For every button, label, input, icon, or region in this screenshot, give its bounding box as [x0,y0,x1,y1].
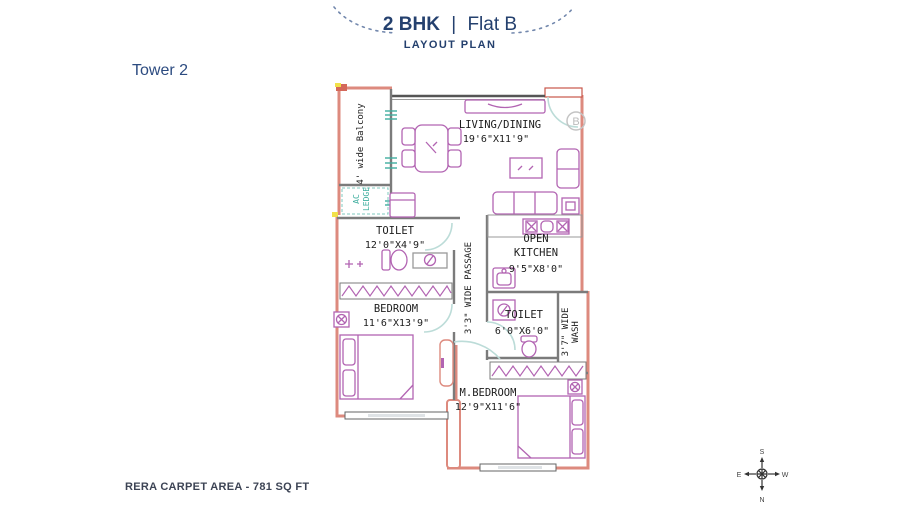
decorative-dash-left-icon [330,4,400,36]
passage-label: 3'3" WIDE PASSAGE [464,242,474,334]
title-divider: | [451,14,456,35]
page-subtitle: LAYOUT PLAN [0,39,900,51]
master-bedroom-label: M.BEDROOM [460,387,517,399]
common-toilet-dims: 12'0"X4'9" [365,240,425,251]
entry-flat-marker-label: B [572,116,579,128]
carpet-area-label: RERA CARPET AREA - 781 SQ FT [125,481,309,493]
compass-right-label: W [782,472,789,479]
bedroom-dims: 11'6"X13'9" [363,318,429,329]
wash-label-line2: WASH [571,321,581,343]
washbasin-common [413,253,447,268]
page-title: 2 BHK | Flat B [0,14,900,36]
compass-top-label: S [760,449,765,456]
tv-unit [465,100,545,113]
page-header: 2 BHK | Flat B LAYOUT PLAN [0,14,900,51]
shower-icon [345,260,363,268]
master-toilet-dims: 6'0"X6'0" [495,326,549,337]
common-toilet-door-arc [425,223,452,250]
kitchen-label-line1: OPEN [523,233,548,245]
master-bed [518,396,585,458]
entry-lintel [545,88,582,97]
wc-master [521,336,537,357]
tower-label: Tower 2 [132,62,188,80]
wc-common [382,250,407,270]
corner-mark-yellow [335,83,341,87]
balcony-label: 4' wide Balcony [356,103,366,185]
coffee-table [510,158,542,178]
side-table-lamp [562,198,579,214]
living-top-window [392,96,545,100]
living-dining-dims: 19'6"X11'9" [463,134,529,145]
decorative-dash-right-icon [508,4,578,36]
master-side-table-fan [568,380,582,394]
bedroom-side-table-fan [334,312,349,327]
sofa-two-seater [557,149,579,188]
master-bedroom-door-arc [454,341,500,359]
kitchen-hob [523,219,569,234]
bedroom-wardrobe [340,283,452,299]
compass-bottom-label: N [759,497,764,504]
ac-ledge-label-line2: LEDGE [362,187,371,211]
dining-table [402,125,461,172]
door-handle [441,358,444,368]
ac-ledge-label-line1: AC [352,194,361,204]
compass-left-label: E [737,472,742,479]
kitchen-label-line2: KITCHEN [514,247,558,259]
common-toilet-label: TOILET [376,225,415,237]
master-bedroom-wardrobe [490,362,586,379]
floor-plan-page: 2 BHK | Flat B LAYOUT PLAN Tower 2 [0,0,900,520]
master-bedroom-dims: 12'9"X11'6" [455,402,521,413]
corner-mark-yellow [332,212,338,217]
kitchen-dims: 9'5"X8'0" [509,264,563,275]
bedroom-bed [340,335,413,399]
compass-icon: S N E W [735,446,790,506]
fridge [390,193,415,217]
living-dining-label: LIVING/DINING [459,119,541,131]
bedroom-label: BEDROOM [374,303,418,315]
floor-plan-drawing: B [330,82,602,474]
wash-label-line1: 3'7" WIDE [561,308,571,357]
sofa-three-seater [493,192,557,214]
master-toilet-label: TOILET [505,309,544,321]
